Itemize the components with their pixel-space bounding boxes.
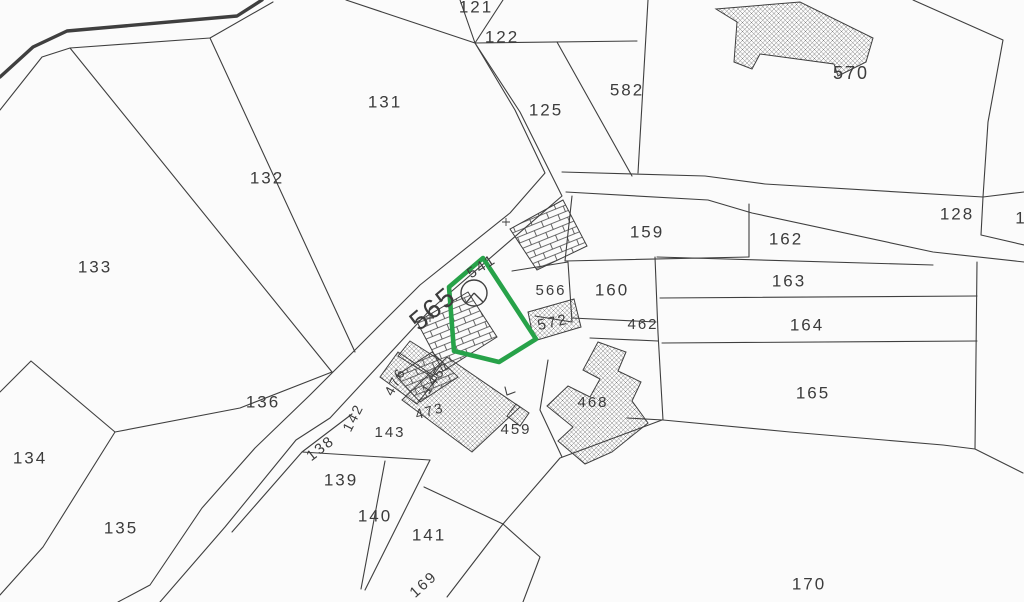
- parcel-label-143: 143: [374, 424, 405, 441]
- parcel-label-125: 125: [529, 100, 563, 119]
- parcel-label-136: 136: [246, 392, 280, 411]
- map-boundary-inner: [0, 2, 273, 110]
- parcel-label-170: 170: [792, 574, 826, 593]
- parcel-label-122: 122: [485, 27, 519, 46]
- parcel-label-459: 459: [500, 421, 531, 438]
- parcel-label-165: 165: [796, 383, 830, 402]
- parcel-label-159: 159: [630, 222, 664, 241]
- parcel-label-134: 134: [13, 448, 47, 467]
- parcel-label-140: 140: [358, 506, 392, 525]
- parcel-label-162: 162: [769, 229, 803, 248]
- parcel-label-139: 139: [324, 470, 358, 489]
- parcel-label-566: 566: [535, 282, 566, 299]
- parcel-label-128: 128: [940, 204, 974, 223]
- parcel-label-160: 160: [595, 280, 629, 299]
- ruin-brick-upper: [510, 200, 587, 270]
- parcel-labels: 1211221255825701311321331281159162163164…: [13, 0, 1024, 601]
- map-canvas: 1211221255825701311321331281159162163164…: [0, 0, 1024, 602]
- parcel-label-164: 164: [790, 315, 824, 334]
- parcel-label-468: 468: [577, 394, 608, 411]
- parcel-label-169: 169: [406, 568, 440, 601]
- parcel-label-141: 141: [412, 525, 446, 544]
- parcel-label-462: 462: [627, 316, 658, 333]
- parcel-label-132: 132: [250, 168, 284, 187]
- parcel-label-121: 121: [459, 0, 493, 16]
- parcel-label-135: 135: [104, 518, 138, 537]
- parcel-label-142: 142: [339, 401, 367, 434]
- parcel-label-570: 570: [833, 63, 869, 83]
- cadastral-map: 1211221255825701311321331281159162163164…: [0, 0, 1024, 602]
- road-north-edge: [562, 172, 765, 184]
- parcel-label-1: 1: [1015, 208, 1024, 227]
- parcel-label-131: 131: [368, 92, 402, 111]
- parcel-label-133: 133: [78, 257, 112, 276]
- parcel-label-582: 582: [610, 80, 644, 99]
- parcel-label-138: 138: [303, 432, 338, 465]
- parcel-label-163: 163: [772, 271, 806, 290]
